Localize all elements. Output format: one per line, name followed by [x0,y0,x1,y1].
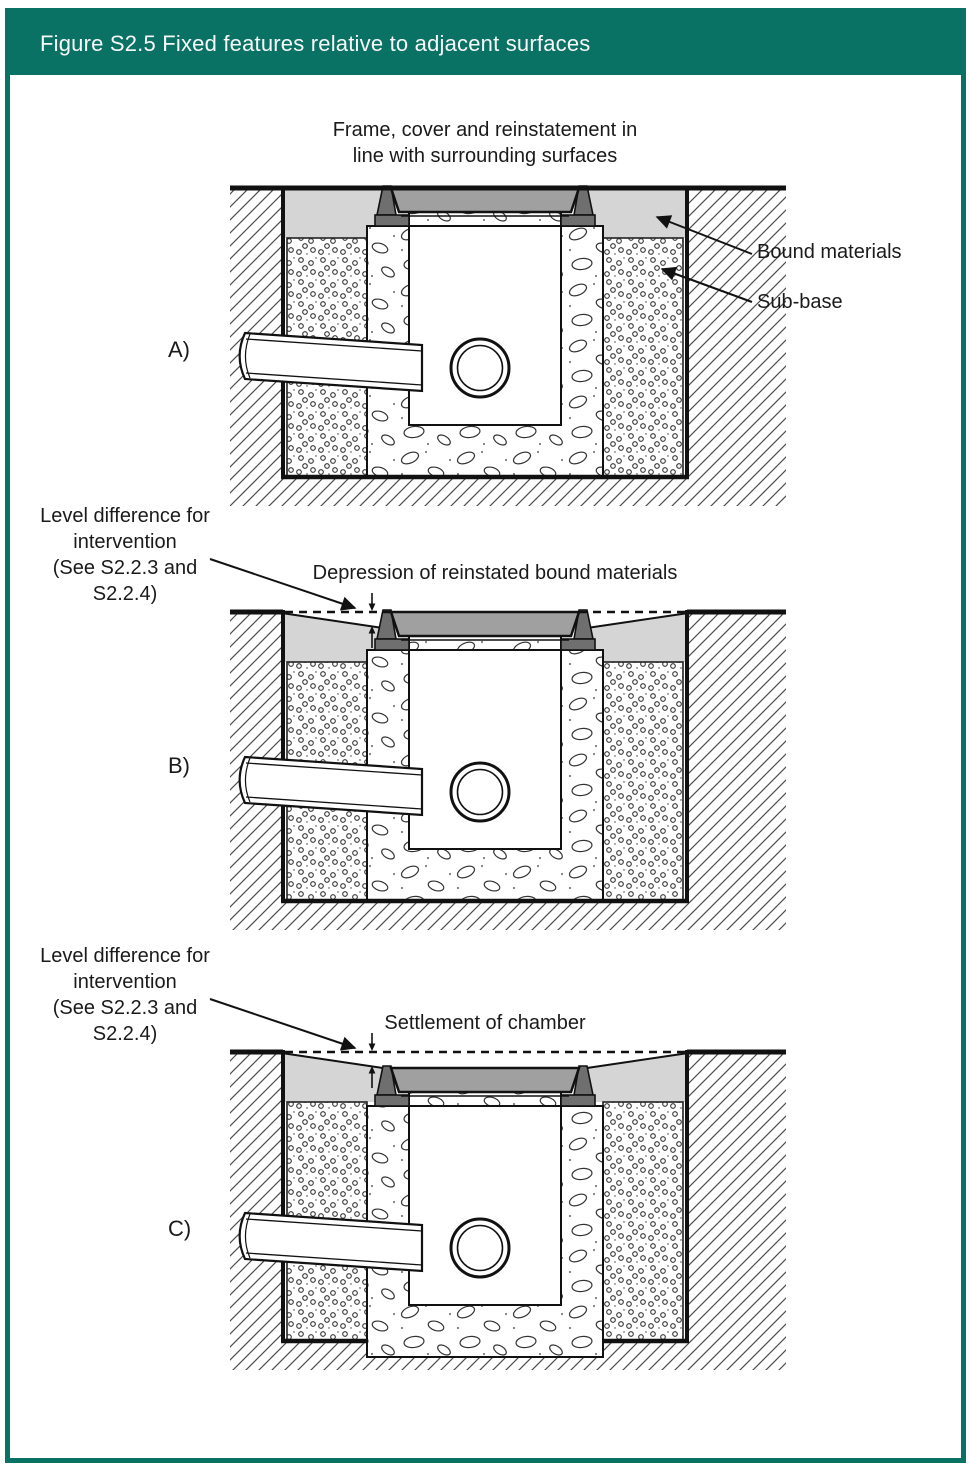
bound-materials-leader-arrow [657,217,752,254]
diagram-b-level-note: Level difference for intervention (See S… [25,503,225,607]
cover [391,1068,579,1096]
cover [391,612,579,640]
diagram-b-level-note-line-3: (See S2.2.3 and [25,555,225,581]
diagram-c-level-note-line-3: (See S2.2.3 and [25,995,225,1021]
sub-base-leader-arrow [662,269,752,302]
diagram-c-label: C) [168,1216,191,1242]
diagram-b-drawing [230,582,790,942]
diagram-a-label: A) [168,337,190,363]
outlet-pipe-opening [451,1219,509,1277]
outlet-pipe-opening [451,763,509,821]
diagram-a-caption: Frame, cover and reinstatement in line w… [240,117,730,169]
figure-title: Figure S2.5 Fixed features relative to a… [40,31,590,57]
diagram-b-level-note-line-1: Level difference for [25,503,225,529]
leader-arrows-a [640,205,770,315]
diagram-b-label: B) [168,753,190,779]
outlet-pipe-opening [451,339,509,397]
diagram-c-level-note-line-4: S2.2.4) [25,1021,225,1047]
diagram-b-level-note-line-4: S2.2.4) [25,581,225,607]
diagram-c-level-note-line-2: intervention [25,969,225,995]
diagram-c-level-note-line-1: Level difference for [25,943,225,969]
diagram-c-drawing [230,1022,790,1394]
cover [391,188,579,216]
bound-materials-callout: Bound materials [757,241,902,264]
diagram-b-level-note-line-2: intervention [25,529,225,555]
diagram-c-level-note: Level difference for intervention (See S… [25,943,225,1047]
figure-body: Frame, cover and reinstatement in line w… [10,75,961,1453]
diagram-a-caption-line-1: Frame, cover and reinstatement in [240,117,730,143]
figure-panel: Figure S2.5 Fixed features relative to a… [5,8,966,1463]
figure-header: Figure S2.5 Fixed features relative to a… [10,13,961,75]
diagram-a-caption-line-2: line with surrounding surfaces [240,143,730,169]
